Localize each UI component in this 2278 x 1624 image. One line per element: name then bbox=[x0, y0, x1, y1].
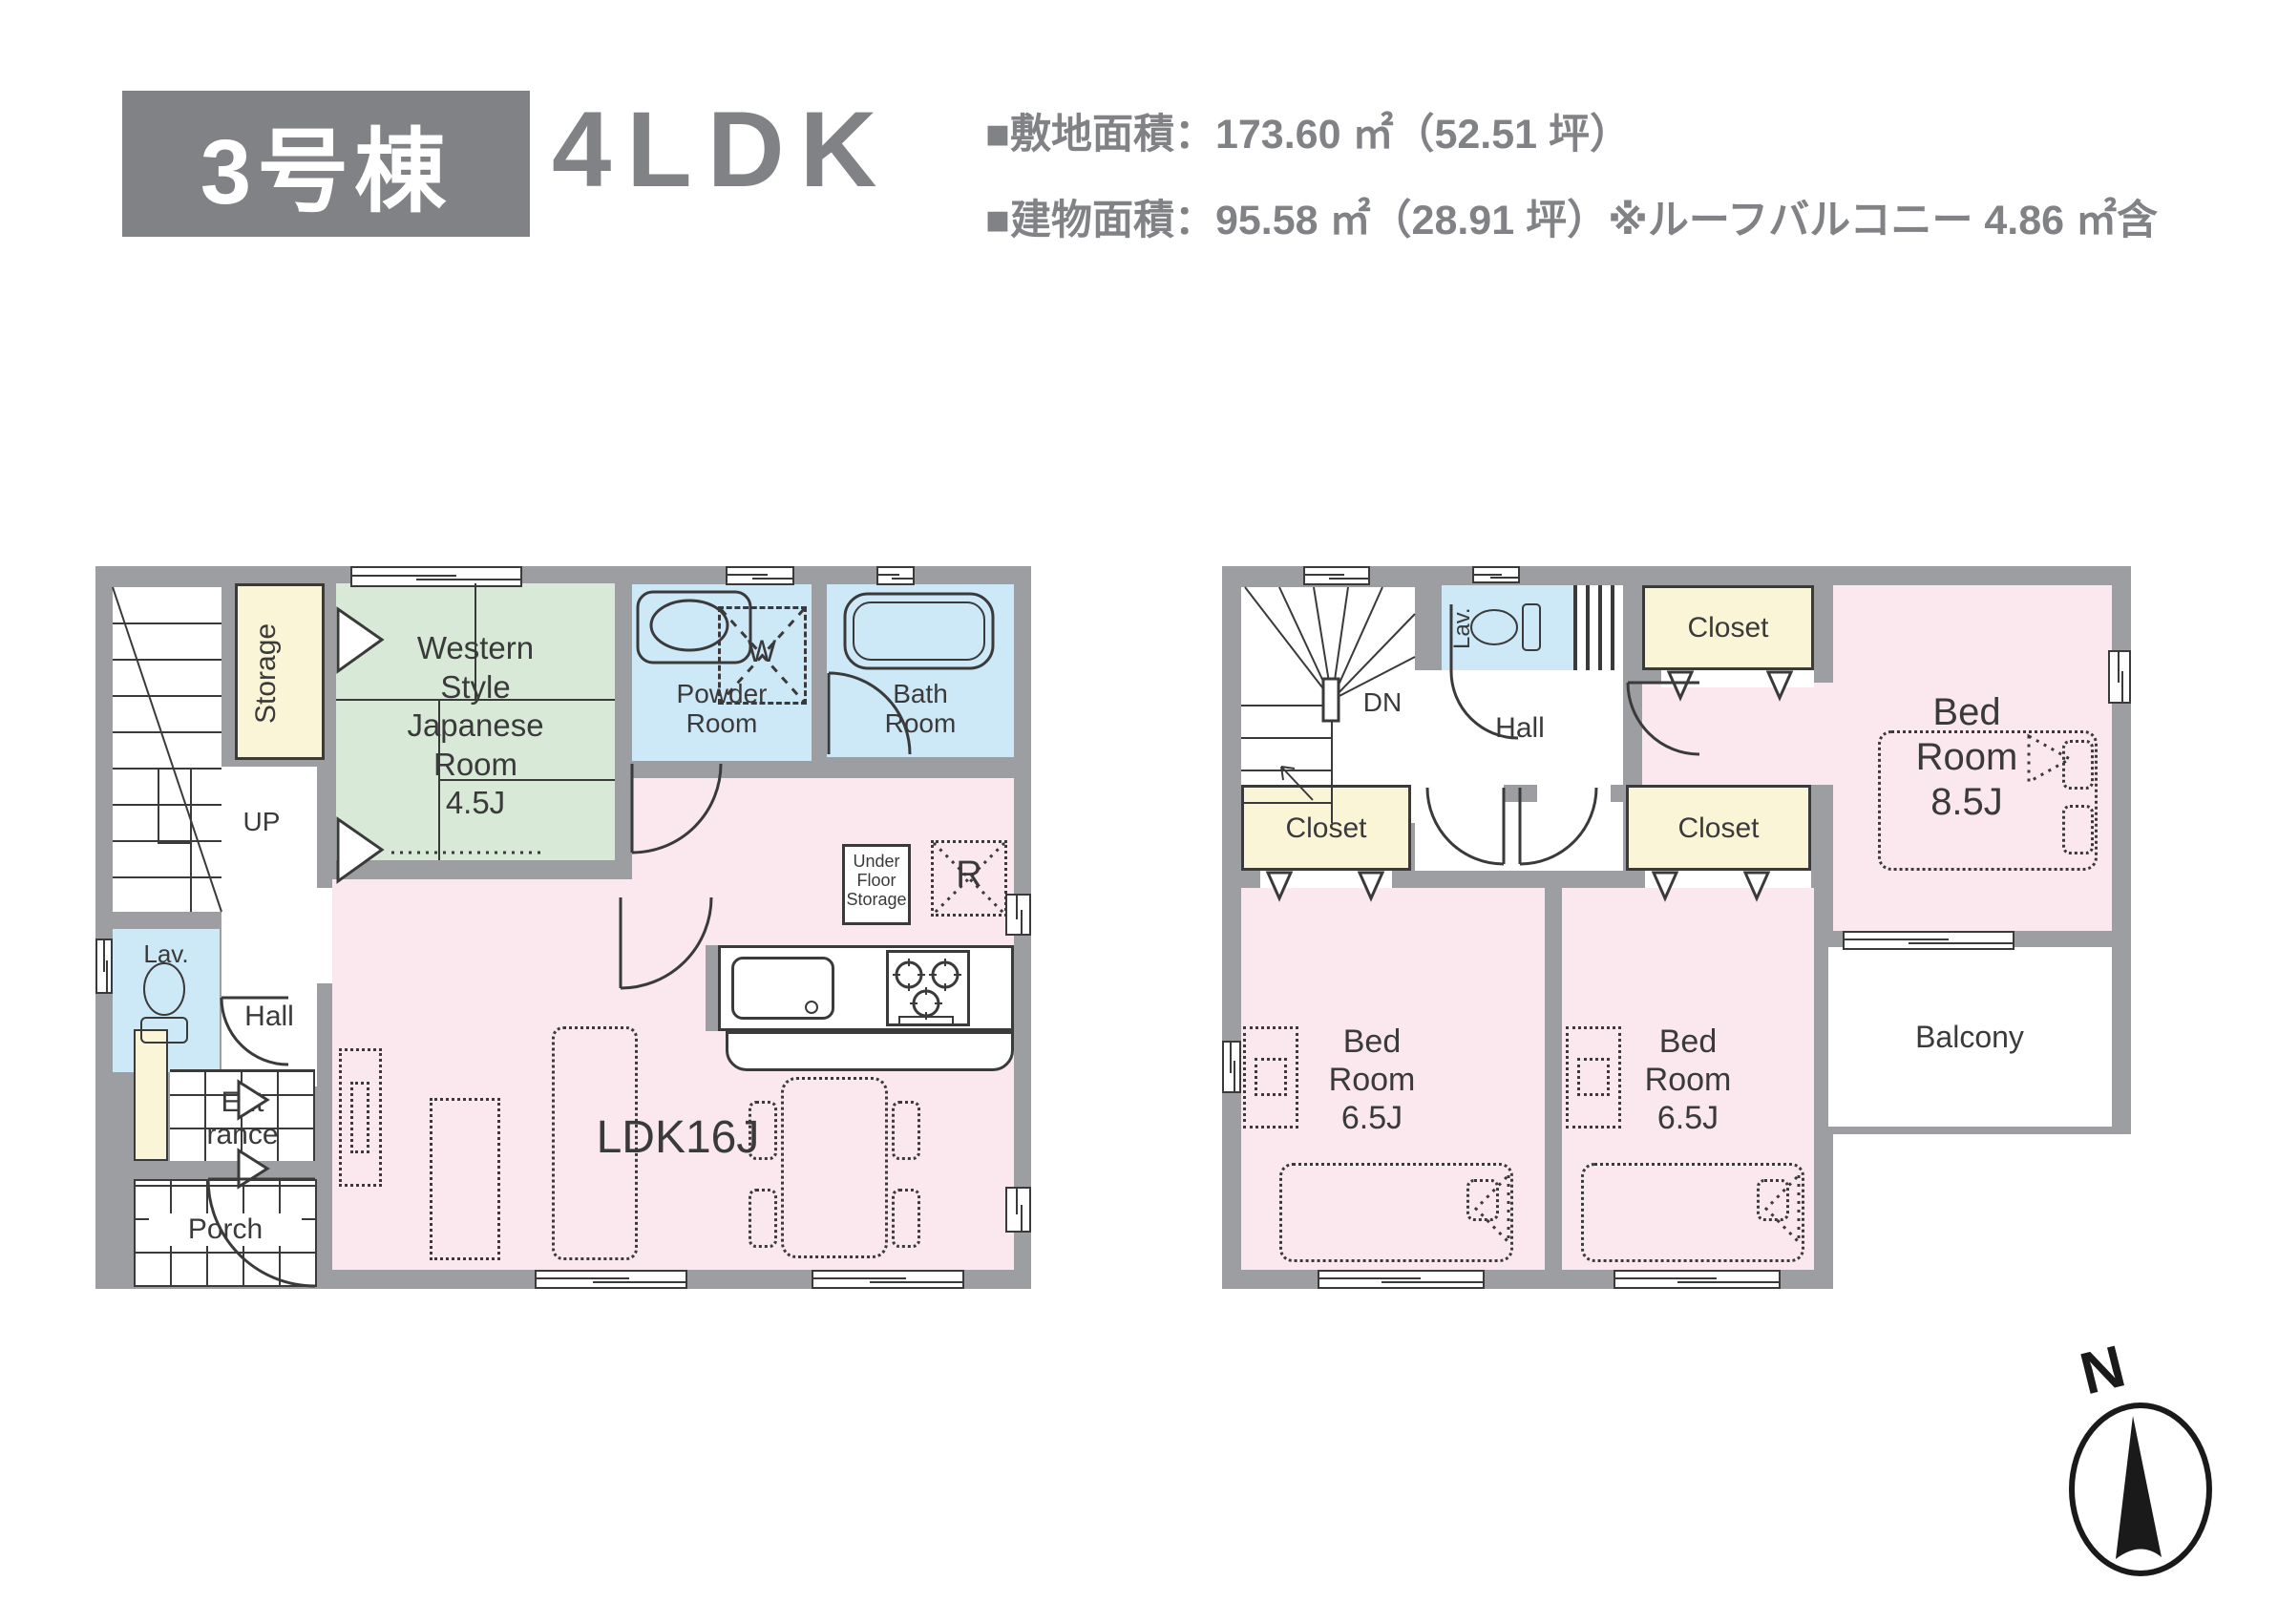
tv-board-inner bbox=[350, 1082, 369, 1153]
entrance-label: Ent rance bbox=[170, 1086, 315, 1150]
window-icon bbox=[726, 566, 794, 585]
floor2-shelf-hatch bbox=[1573, 585, 1623, 670]
washing-machine-label: W bbox=[733, 635, 791, 669]
wall-stub bbox=[1504, 785, 1537, 802]
building-area-text: ■建物面積：95.58 ㎡（28.91 坪）※ルーフバルコニー 4.86 ㎡含 bbox=[985, 187, 2158, 246]
window-icon bbox=[1472, 566, 1520, 583]
dining-chair bbox=[892, 1101, 920, 1160]
floor2-plan: DN Lav. Hall Closet Closet Closet Bed Ro… bbox=[1222, 566, 2131, 1289]
plan-type-label: 4LDK bbox=[552, 88, 892, 211]
closet-label: Closet bbox=[1626, 812, 1811, 845]
ldk-label: LDK16J bbox=[573, 1112, 783, 1164]
floor1-shoe-cabinet bbox=[134, 1029, 168, 1161]
kitchen-wall-stub bbox=[706, 945, 718, 1031]
desk-chair bbox=[1577, 1058, 1610, 1096]
floor1-hall-ldk-opening bbox=[317, 888, 332, 983]
dining-chair bbox=[892, 1189, 920, 1248]
floorplan-page: 3号棟 4LDK ■敷地面積：173.60 ㎡（52.51 坪） ■建物面積：9… bbox=[0, 0, 2278, 1624]
bath-room-label: Bath Room bbox=[827, 679, 1014, 739]
low-table bbox=[430, 1098, 500, 1260]
window-icon bbox=[812, 1270, 964, 1289]
window-icon bbox=[1318, 1270, 1485, 1289]
dining-chair bbox=[749, 1189, 777, 1248]
under-floor-storage-label: Under Floor Storage bbox=[842, 852, 911, 909]
building-number-label: 3号棟 bbox=[200, 97, 452, 230]
kitchen-lower-counter bbox=[726, 1031, 1014, 1071]
powder-room-label: Powder Room bbox=[632, 679, 812, 739]
japanese-room-label: Western Style Japanese Room 4.5J bbox=[361, 629, 590, 823]
window-icon bbox=[1222, 1041, 1241, 1093]
window-icon bbox=[1303, 566, 1370, 585]
dining-table bbox=[781, 1077, 888, 1258]
storage-label: Storage bbox=[250, 609, 283, 738]
closet-label: Closet bbox=[1241, 812, 1411, 845]
hall-label: Hall bbox=[231, 1001, 307, 1033]
floor1-stairs bbox=[113, 587, 221, 912]
window-icon bbox=[876, 566, 915, 585]
pillow bbox=[2062, 805, 2094, 854]
window-icon bbox=[1614, 1270, 1781, 1289]
compass-rose-icon bbox=[2053, 1389, 2225, 1580]
hall-label: Hall bbox=[1482, 712, 1558, 745]
lavatory-label: Lav. bbox=[118, 940, 214, 968]
pillow bbox=[1466, 1179, 1499, 1221]
up-label: UP bbox=[223, 807, 300, 836]
stove-icon bbox=[886, 950, 970, 1026]
lavatory-label: Lav. bbox=[1449, 595, 1476, 662]
wall-stub bbox=[1611, 785, 1623, 802]
closet-door-track bbox=[1645, 871, 1811, 888]
window-icon bbox=[350, 566, 522, 587]
balcony-label: Balcony bbox=[1893, 1021, 2046, 1055]
bedroom-middle-label: Bed Room 6.5J bbox=[1612, 1023, 1764, 1137]
floor1-plan: Under Floor Storage R W Storage Western bbox=[95, 566, 1031, 1289]
dn-label: DN bbox=[1344, 687, 1421, 717]
building-number-badge: 3号棟 bbox=[122, 91, 530, 237]
bedroom-left-label: Bed Room 6.5J bbox=[1296, 1023, 1448, 1137]
porch-label: Porch bbox=[149, 1213, 302, 1246]
desk-chair bbox=[1255, 1058, 1287, 1096]
floor2-bedroom-main-entry bbox=[1642, 683, 1833, 785]
window-icon bbox=[1005, 1187, 1031, 1233]
balcony-window-icon bbox=[1843, 931, 2014, 950]
closet-door-track bbox=[1661, 670, 1814, 687]
site-area-text: ■敷地面積：173.60 ㎡（52.51 坪） bbox=[985, 101, 1631, 160]
window-icon bbox=[535, 1270, 687, 1289]
window-icon bbox=[2108, 650, 2131, 704]
bedroom-main-label: Bed Room 8.5J bbox=[1871, 690, 2062, 826]
closet-label: Closet bbox=[1642, 612, 1814, 644]
closet-door-track bbox=[1260, 871, 1392, 888]
compass: N bbox=[2043, 1337, 2234, 1585]
refrigerator-label: R bbox=[950, 854, 988, 896]
window-icon bbox=[95, 939, 113, 994]
kitchen-sink-icon bbox=[731, 957, 834, 1020]
window-icon bbox=[1005, 894, 1031, 936]
pillow bbox=[1757, 1179, 1789, 1221]
pillow bbox=[2062, 740, 2094, 790]
